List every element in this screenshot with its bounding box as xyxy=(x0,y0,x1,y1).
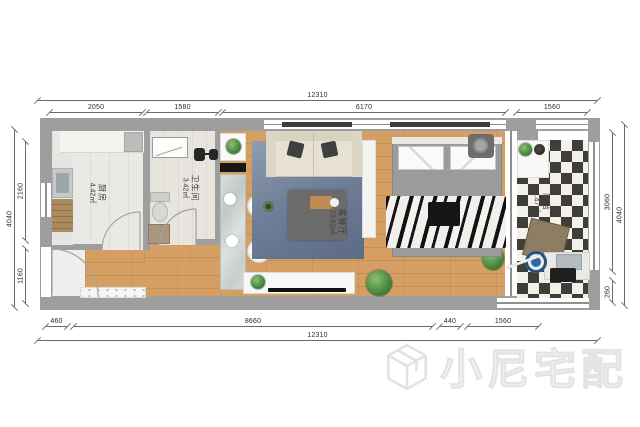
coffee-table-bowl xyxy=(330,198,339,207)
dim-label: 12310 xyxy=(307,332,327,339)
dim-right-total: 4040 xyxy=(624,125,625,305)
tall-side-cabinet xyxy=(362,140,376,238)
dim-top-seg-1: 2050 xyxy=(50,112,142,113)
shoe-cabinet xyxy=(80,287,146,298)
dim-label: 1580 xyxy=(174,104,190,111)
dim-label: 1560 xyxy=(544,104,560,111)
dim-label: 12310 xyxy=(307,92,327,99)
bar-plate-2 xyxy=(226,235,238,247)
bathroom-area: 3.42㎡ xyxy=(180,175,189,202)
dim-bottom-seg-2: 8660 xyxy=(74,326,432,327)
brand-logo-icon xyxy=(382,342,432,392)
bathroom-fixture-1 xyxy=(194,148,205,161)
wall-balcony-top-stub xyxy=(517,131,538,140)
kitchen-sink-basin xyxy=(56,173,69,193)
toilet-bowl xyxy=(152,202,168,222)
living-dining-name: 客餐厅 xyxy=(336,209,346,236)
balcony-plant-1-icon xyxy=(519,143,532,156)
plant-on-cabinet-icon xyxy=(226,139,241,154)
sofa-seam xyxy=(313,133,314,175)
bathroom-fixture-2 xyxy=(209,149,218,160)
wall-bathroom-bottom-right xyxy=(196,239,220,245)
kitchen-label: 厨房 4.42㎡ xyxy=(87,183,106,204)
balcony-sliding-door xyxy=(505,131,517,296)
floor-plant-icon xyxy=(366,270,392,296)
living-dining-area: 23.62㎡ xyxy=(327,209,336,236)
dim-label: 460 xyxy=(50,318,62,325)
toilet-tank xyxy=(150,192,170,202)
watermark: 小尼宅配 xyxy=(382,336,628,397)
bed-end-bench xyxy=(428,202,460,226)
window-balcony-right xyxy=(589,142,599,270)
brand-name: 小尼宅配 xyxy=(440,336,628,397)
dim-bottom-total: 12310 xyxy=(38,340,597,341)
dim-label: 2160 xyxy=(18,183,25,199)
sofa-pillow-2 xyxy=(321,141,339,159)
dim-left-seg-2: 1160 xyxy=(25,249,26,303)
dim-bottom-seg-4: 1560 xyxy=(468,326,538,327)
kitchen-wood-mat xyxy=(52,199,73,232)
dim-top-total: 12310 xyxy=(38,100,597,101)
dim-label: 4040 xyxy=(7,210,14,226)
sofa-back xyxy=(266,131,362,141)
fan-blades-icon xyxy=(473,138,488,153)
dim-label: 8660 xyxy=(245,318,261,325)
dim-bottom-seg-1: 460 xyxy=(46,326,67,327)
dim-label: 260 xyxy=(605,285,612,297)
bar-shelf xyxy=(220,163,246,172)
bathroom-label: 卫生间 3.42㎡ xyxy=(180,175,199,202)
balcony-label: 阳台 4.47㎡ xyxy=(531,192,550,213)
dim-label: 1560 xyxy=(495,318,511,325)
floorplan-canvas: 12310 2050 1580 6170 1560 460 8660 440 1… xyxy=(0,0,640,427)
kitchen-area: 4.42㎡ xyxy=(87,183,96,204)
dim-left-seg-1: 2160 xyxy=(25,142,26,240)
dim-label: 3060 xyxy=(605,194,612,210)
sofa-arm-left xyxy=(266,131,276,177)
dim-right-seg-2: 260 xyxy=(612,281,613,302)
dim-top-seg-3: 6170 xyxy=(223,112,505,113)
balcony-pot-icon xyxy=(534,144,545,155)
dim-label: 2050 xyxy=(88,104,104,111)
balcony-area: 4.47㎡ xyxy=(531,192,540,213)
window-frame-sofa xyxy=(282,122,352,127)
dim-bottom-seg-3: 440 xyxy=(440,326,460,327)
coffee-table-tray xyxy=(310,196,332,209)
pillow-left xyxy=(398,146,444,170)
entrance-opening xyxy=(41,247,51,297)
plant-on-console-icon xyxy=(251,275,265,289)
dim-label: 1160 xyxy=(18,268,25,284)
dim-top-seg-2: 1580 xyxy=(147,112,218,113)
robot-vacuum xyxy=(263,201,274,212)
dim-label: 440 xyxy=(444,318,456,325)
printer xyxy=(550,268,576,282)
kitchen-appliance xyxy=(124,132,143,152)
bathroom-name: 卫生间 xyxy=(189,175,199,202)
window-frame-bed xyxy=(390,122,490,127)
window-balcony-top xyxy=(536,120,588,129)
window-kitchen-left xyxy=(41,183,51,217)
bar-plate-1 xyxy=(224,193,236,205)
window-balcony-bottom xyxy=(497,298,589,308)
dim-label: 6170 xyxy=(356,104,372,111)
bathroom-vanity xyxy=(148,224,170,244)
tv-screen xyxy=(268,288,346,292)
balcony-name: 阳台 xyxy=(540,192,550,213)
dim-top-seg-4: 1560 xyxy=(517,112,587,113)
dim-left-total: 4040 xyxy=(14,130,15,307)
dim-label: 4040 xyxy=(617,207,624,223)
sofa-arm-right xyxy=(352,131,362,177)
dim-right-seg-1: 3060 xyxy=(612,133,613,271)
living-dining-label: 客餐厅 23.62㎡ xyxy=(327,209,346,236)
kitchen-name: 厨房 xyxy=(96,183,106,204)
